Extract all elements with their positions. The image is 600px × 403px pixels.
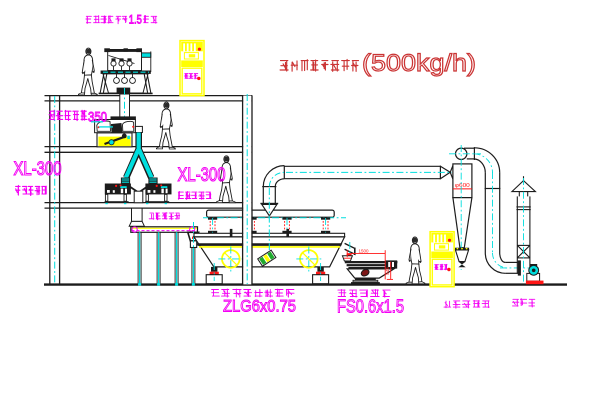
svg-text:1.5: 1.5 <box>129 15 142 27</box>
svg-text:FS0.6x1.5: FS0.6x1.5 <box>337 297 404 317</box>
svg-text:XL-300: XL-300 <box>178 165 226 186</box>
svg-text:ZLG6x0.75: ZLG6x0.75 <box>223 297 296 316</box>
svg-text:1500: 1500 <box>359 248 370 253</box>
svg-text:(500kg/h): (500kg/h) <box>362 50 476 77</box>
svg-text:φ600: φ600 <box>455 183 470 189</box>
svg-text:XL-300: XL-300 <box>14 159 62 180</box>
svg-text:546: 546 <box>385 267 390 275</box>
